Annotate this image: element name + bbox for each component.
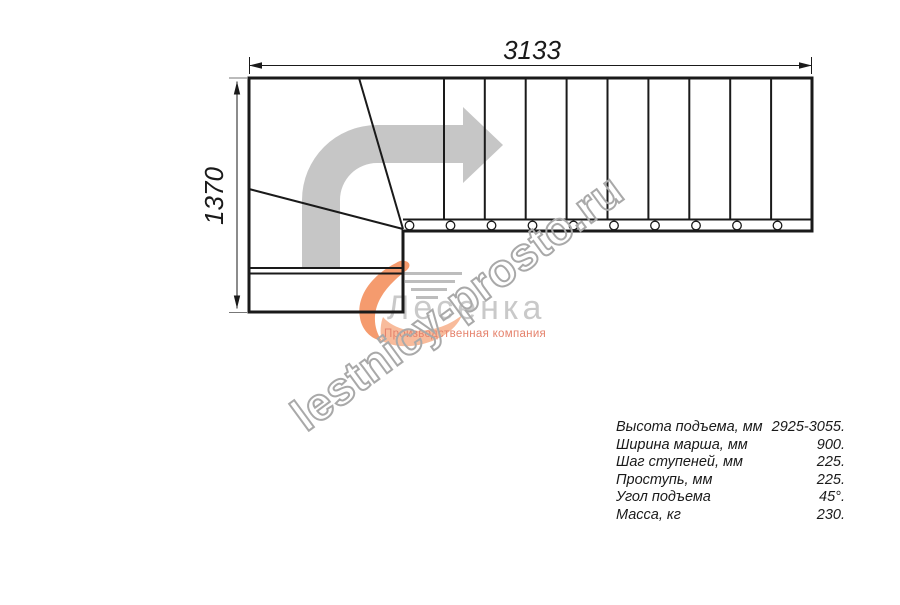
- baluster-icon: [487, 221, 496, 230]
- logo-name: Лесенка: [387, 289, 545, 327]
- spec-value: 2925-3055.: [772, 419, 845, 437]
- baluster-icon: [610, 221, 619, 230]
- arrowhead-icon: [799, 62, 812, 68]
- baluster-icon: [773, 221, 782, 230]
- spec-row: Высота подъема, мм 2925-3055.: [616, 419, 845, 437]
- spec-label: Высота подъема, мм: [616, 419, 763, 437]
- spec-value: 225.: [817, 472, 845, 490]
- spec-label: Шаг ступеней, мм: [616, 454, 743, 472]
- spec-value: 45°.: [819, 489, 845, 507]
- spec-label: Проступь, мм: [616, 472, 712, 490]
- baluster-icon: [446, 221, 455, 230]
- dimension-width-label: 3133: [503, 35, 561, 65]
- arrowhead-icon: [234, 82, 240, 95]
- logo-speedline-icon: [405, 280, 455, 283]
- arrowhead-icon: [234, 296, 240, 309]
- spec-value: 230.: [817, 507, 845, 525]
- baluster-icon: [651, 221, 660, 230]
- spec-row: Угол подъема 45°.: [616, 489, 845, 507]
- baluster-icon: [528, 221, 537, 230]
- dimension-width: 3133: [249, 35, 812, 74]
- baluster-circles: [405, 221, 782, 230]
- spec-row: Ширина марша, мм 900.: [616, 437, 845, 455]
- spec-value: 900.: [817, 437, 845, 455]
- spec-table: Высота подъема, мм 2925-3055. Ширина мар…: [616, 419, 845, 524]
- spec-label: Ширина марша, мм: [616, 437, 748, 455]
- logo-tagline: Производственная компания: [384, 328, 546, 340]
- baluster-icon: [733, 221, 742, 230]
- stair-plan-drawing: Лесенка Производственная компания: [0, 0, 900, 600]
- logo-speedline-icon: [398, 272, 462, 275]
- dimension-height-label: 1370: [199, 167, 229, 225]
- spec-row: Шаг ступеней, мм 225.: [616, 454, 845, 472]
- spec-label: Масса, кг: [616, 507, 681, 525]
- spec-row: Масса, кг 230.: [616, 507, 845, 525]
- spec-value: 225.: [817, 454, 845, 472]
- baluster-icon: [569, 221, 578, 230]
- spec-label: Угол подъема: [616, 489, 711, 507]
- dimension-height: 1370: [199, 78, 247, 313]
- spec-row: Проступь, мм 225.: [616, 472, 845, 490]
- baluster-icon: [692, 221, 701, 230]
- arrowhead-icon: [249, 62, 262, 68]
- baluster-icon: [405, 221, 414, 230]
